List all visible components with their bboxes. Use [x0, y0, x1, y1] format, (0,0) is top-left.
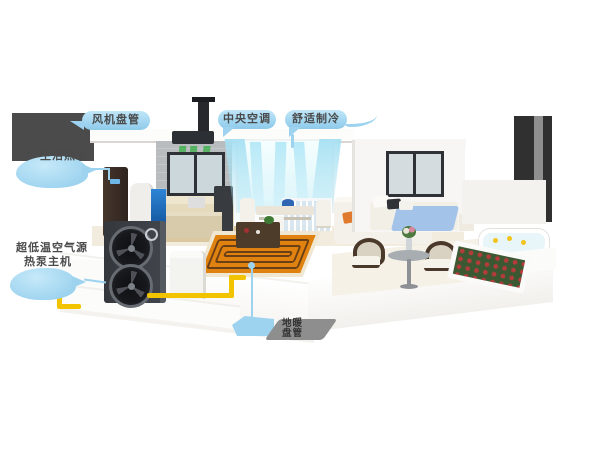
callout-floor-heating-line2: 盘管	[282, 329, 303, 339]
flower-vase	[400, 226, 418, 252]
dining-table	[256, 206, 314, 215]
callout-heat-pump: 超低温空气源 热泵主机	[10, 240, 120, 302]
bedroom-window	[386, 151, 444, 197]
water-pipe	[147, 293, 205, 298]
unit-side-panel	[160, 221, 166, 303]
kitchen-window-mullion	[194, 155, 197, 193]
exhaust-duct	[198, 99, 209, 135]
fan-hub	[128, 245, 135, 252]
table-base	[400, 284, 418, 289]
rubber-duck	[521, 240, 526, 245]
ceiling-fan-coil-unit	[172, 131, 214, 144]
callout-floor-heating: 地暖 盘管	[228, 258, 348, 348]
blue-table-decor	[282, 199, 294, 206]
rubber-duck	[507, 236, 512, 241]
tea-set-white	[256, 230, 260, 234]
callout-central-ac-label: 中央空调	[223, 114, 271, 125]
floor-heating-line	[251, 267, 253, 318]
floor-heating-arrow	[232, 316, 274, 336]
callout-comfort-cooling-label: 舒适制冷	[292, 114, 340, 125]
callout-fan-coil: 风机盘管	[82, 111, 150, 130]
coffee-table	[236, 222, 280, 248]
floor-heating-labels: 地暖 盘管	[282, 319, 303, 339]
bedroom-window-mullion	[413, 154, 416, 194]
callout-central-ac: 中央空调	[218, 110, 276, 129]
callout-heat-pump-line1: 超低温空气源	[16, 242, 88, 255]
hot-water-cloud-tip	[82, 164, 96, 176]
bed-pillow-white	[399, 201, 413, 210]
bonsai-plant	[264, 216, 274, 224]
table-stem	[407, 259, 411, 285]
rubber-duck	[493, 238, 498, 243]
callout-comfort-cooling-drip	[291, 134, 294, 148]
water-pipe	[57, 304, 81, 309]
callout-comfort-cooling-swoosh	[345, 112, 377, 127]
coffee-machine	[188, 197, 205, 208]
dining-chair	[316, 200, 331, 228]
hot-water-connector-h	[88, 168, 110, 170]
terrace-table	[388, 250, 430, 292]
heat-pump-home-cutaway-illustration: 风机盘管 中央空调 舒适制冷 生活热水 超低温空气源 热泵主机 地暖	[0, 0, 600, 450]
buffer-tank	[170, 251, 206, 299]
callout-fan-coil-tail	[70, 121, 84, 130]
callout-central-ac-tail	[223, 127, 235, 137]
callout-comfort-cooling: 舒适制冷	[285, 110, 347, 129]
callout-hot-water: 生活热水	[14, 146, 124, 192]
hot-water-connector-v	[108, 168, 110, 180]
callout-hot-water-label: 生活热水	[40, 150, 88, 163]
bath-wing-wall	[462, 180, 546, 224]
heat-pump-connector	[84, 278, 106, 283]
tea-set-red	[244, 228, 249, 233]
heat-pump-cloud	[10, 268, 76, 300]
duct-cap	[192, 97, 215, 102]
brand-logo-badge	[145, 228, 158, 241]
callout-fan-coil-label: 风机盘管	[92, 115, 140, 126]
fan-hub	[128, 283, 135, 290]
terrace-chair	[352, 238, 380, 270]
heating-coil-loop	[223, 251, 293, 257]
chair-cushion	[352, 256, 380, 268]
flowers-bouquet	[402, 226, 416, 238]
buffer-tank-cap	[170, 251, 203, 258]
